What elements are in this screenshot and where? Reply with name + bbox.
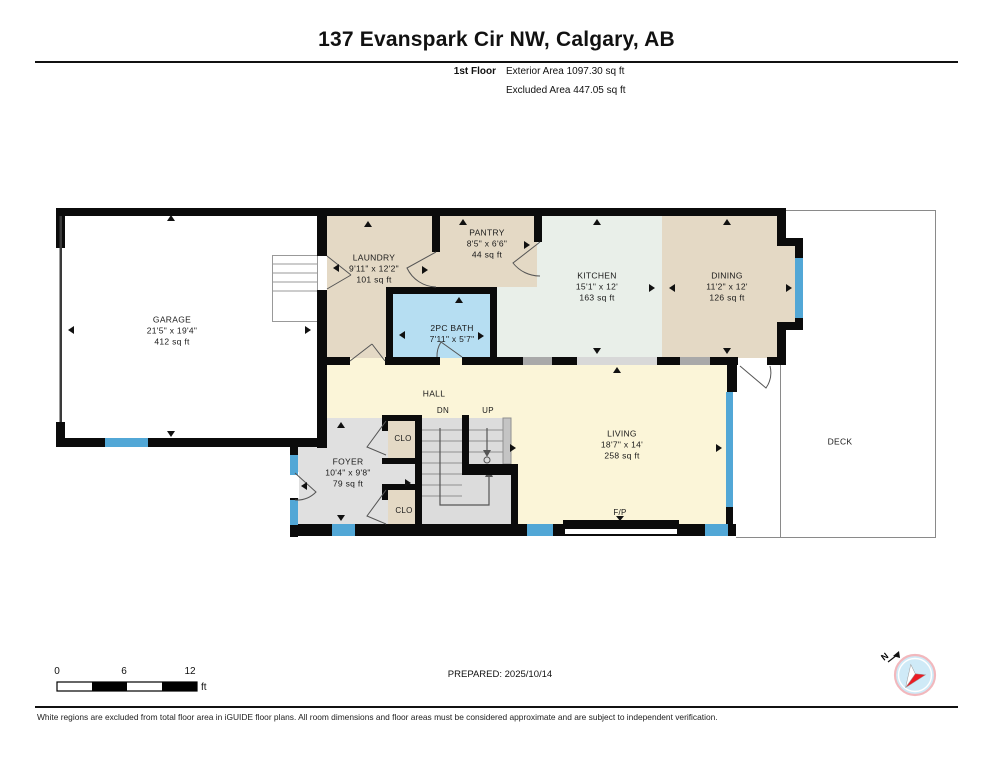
disclaimer-text: White regions are excluded from total fl…: [37, 712, 967, 722]
pantry-name: PANTRY: [467, 227, 507, 238]
fireplace-label: F/P: [613, 508, 626, 518]
deck-label: DECK: [828, 436, 853, 447]
pantry-dims: 8'5" x 6'6": [467, 238, 507, 249]
title-divider: [35, 61, 958, 63]
bath-dims: 7'11" x 5'7": [430, 334, 475, 345]
scale-unit: ft: [201, 682, 207, 693]
garage-name: GARAGE: [147, 314, 198, 325]
compass: N: [879, 651, 935, 695]
kitchen-dims: 15'1" x 12': [576, 281, 618, 292]
foyer-label: FOYER 10'4" x 9'8" 79 sq ft: [325, 456, 371, 489]
north-arrow-icon: [888, 651, 900, 662]
scale-bar: [57, 682, 197, 691]
laundry-name: LAUNDRY: [349, 252, 399, 263]
dimension-arrow-icon: [68, 326, 74, 334]
foyer-dims: 10'4" x 9'8": [325, 467, 371, 478]
footer-divider: [35, 706, 958, 708]
garage-area: 412 sq ft: [147, 337, 198, 348]
living-name: LIVING: [601, 428, 643, 439]
prepared-date: PREPARED: 2025/10/14: [400, 669, 600, 680]
exterior-area-value: Exterior Area 1097.30 sq ft: [506, 66, 624, 77]
window-segment: [290, 500, 298, 525]
garage-stairs: [272, 256, 318, 322]
floor-plan-canvas: N: [0, 0, 993, 768]
stairs-up-label: UP: [482, 406, 494, 416]
closet2-label: CLO: [395, 506, 412, 516]
foyer-area: 79 sq ft: [325, 479, 371, 490]
stairs-down-label: DN: [437, 406, 449, 416]
garage-label: GARAGE 21'5" x 19'4" 412 sq ft: [147, 314, 198, 347]
living-label: LIVING 18'7" x 14' 258 sq ft: [601, 428, 643, 461]
pantry-label: PANTRY 8'5" x 6'6" 44 sq ft: [467, 227, 507, 260]
dining-area: 126 sq ft: [706, 293, 748, 304]
dining-label: DINING 11'2" x 12' 126 sq ft: [706, 270, 748, 303]
kitchen-name: KITCHEN: [576, 270, 618, 281]
scale-tick-12: 12: [181, 666, 199, 677]
kitchen-area: 163 sq ft: [576, 293, 618, 304]
garage-dims: 21'5" x 19'4": [147, 325, 198, 336]
foyer-name: FOYER: [325, 456, 371, 467]
living-dims: 18'7" x 14': [601, 439, 643, 450]
closet1-label: CLO: [394, 434, 411, 444]
dimension-arrow-icon: [305, 326, 311, 334]
bath-label: 2PC BATH 7'11" x 5'7": [430, 323, 475, 345]
hall-label: HALL: [423, 388, 445, 399]
laundry-area: 101 sq ft: [349, 275, 399, 286]
window-segment: [795, 258, 803, 318]
floor-label: 1st Floor: [380, 66, 496, 77]
window-segment: [705, 524, 728, 536]
kitchen-label: KITCHEN 15'1" x 12' 163 sq ft: [576, 270, 618, 303]
fireplace: [563, 520, 679, 534]
window-segment: [290, 455, 298, 475]
bath-name: 2PC BATH: [430, 323, 475, 334]
dimension-arrow-icon: [167, 431, 175, 437]
window-segment: [726, 392, 733, 507]
floor-plan-page: N 137 Evanspark Cir NW, Calgary, AB 1st …: [0, 0, 993, 768]
window-segment: [527, 524, 553, 536]
stair-rail: [503, 418, 511, 464]
dining-name: DINING: [706, 270, 748, 281]
laundry-label: LAUNDRY 9'11" x 12'2" 101 sq ft: [349, 252, 399, 285]
scale-tick-0: 0: [50, 666, 64, 677]
dining-bump-fill: [783, 246, 797, 322]
foyer-fill-c: [388, 464, 415, 484]
page-title: 137 Evanspark Cir NW, Calgary, AB: [0, 28, 993, 52]
excluded-area-value: Excluded Area 447.05 sq ft: [506, 85, 626, 96]
living-area: 258 sq ft: [601, 451, 643, 462]
pantry-area: 44 sq ft: [467, 250, 507, 261]
deck-door: [740, 366, 771, 388]
foyer-fill-b: [296, 446, 327, 532]
dining-dims: 11'2" x 12': [706, 281, 748, 292]
window-segment: [332, 524, 355, 536]
window-segment: [105, 438, 148, 447]
laundry-dims: 9'11" x 12'2": [349, 263, 399, 274]
scale-tick-6: 6: [117, 666, 131, 677]
